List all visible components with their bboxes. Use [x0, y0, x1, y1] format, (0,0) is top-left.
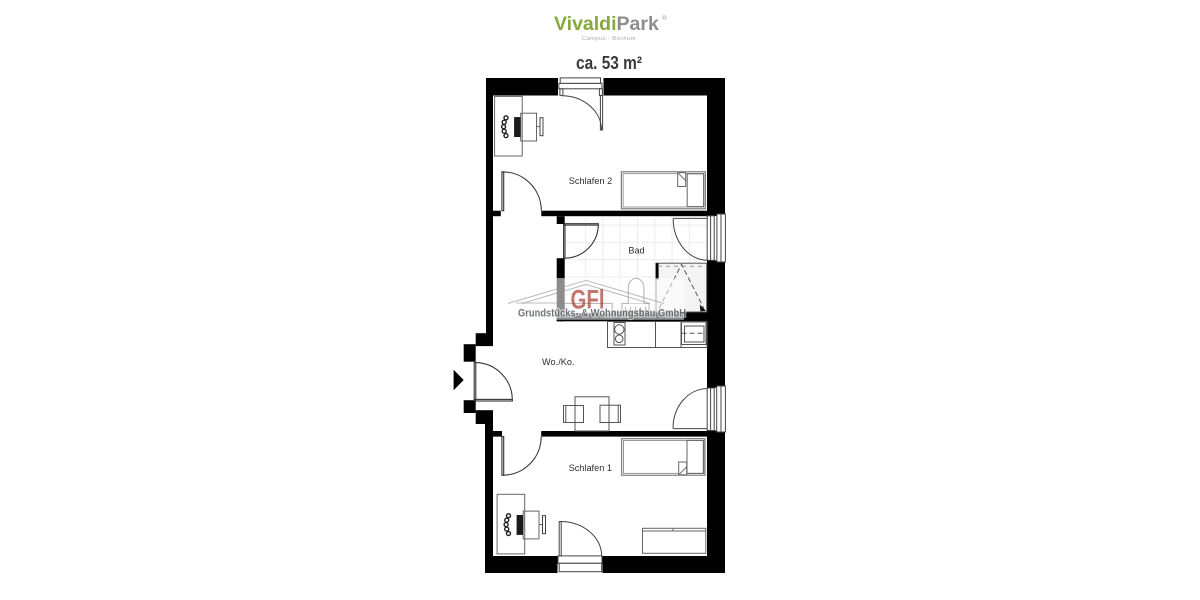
svg-text:VivaldiPark: VivaldiPark: [554, 13, 659, 35]
svg-text:®: ®: [662, 14, 667, 22]
svg-text:Schlafen 1: Schlafen 1: [569, 463, 612, 473]
svg-text:Schlafen 2: Schlafen 2: [569, 176, 612, 186]
svg-text:Bad: Bad: [628, 245, 644, 255]
svg-text:Campus - Bochum: Campus - Bochum: [582, 36, 636, 42]
svg-text:ca. 53 m²: ca. 53 m²: [576, 53, 642, 73]
svg-text:Wo./Ko.: Wo./Ko.: [542, 357, 575, 367]
svg-text:Grundstücks- & Wohnungsbau Gmb: Grundstücks- & Wohnungsbau GmbH: [518, 308, 686, 320]
